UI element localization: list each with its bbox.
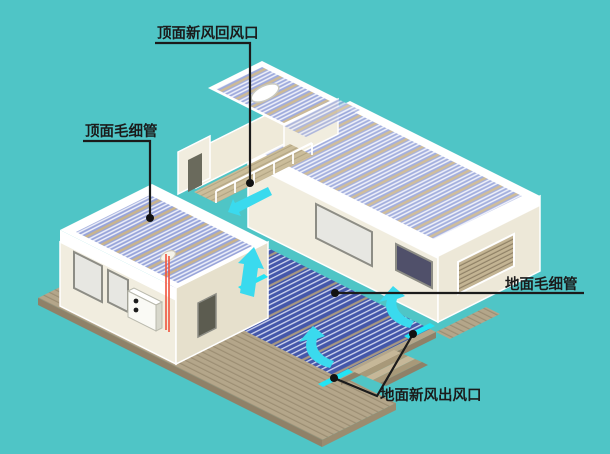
dot-floor-supply-vent-left bbox=[330, 374, 338, 382]
label-ceiling-return-vent: 顶面新风回风口 bbox=[157, 24, 259, 42]
heat-pump-knob-2 bbox=[134, 308, 139, 313]
label-ceiling-capillary: 顶面毛细管 bbox=[85, 122, 158, 140]
dot-ceiling-return-vent bbox=[246, 179, 254, 187]
hvac-isometric-diagram: 顶面新风回风口 顶面毛细管 地面毛细管 地面新风出风口 bbox=[0, 0, 610, 454]
dot-floor-capillary bbox=[331, 289, 339, 297]
dot-ceiling-capillary bbox=[146, 214, 154, 222]
label-floor-supply-vent: 地面新风出风口 bbox=[380, 386, 482, 404]
heat-pump-knob-1 bbox=[134, 299, 139, 304]
diagram-canvas: 顶面新风回风口 顶面毛细管 地面毛细管 地面新风出风口 bbox=[0, 0, 610, 454]
label-floor-capillary: 地面毛细管 bbox=[505, 275, 578, 293]
dot-floor-supply-vent-right bbox=[409, 330, 417, 338]
